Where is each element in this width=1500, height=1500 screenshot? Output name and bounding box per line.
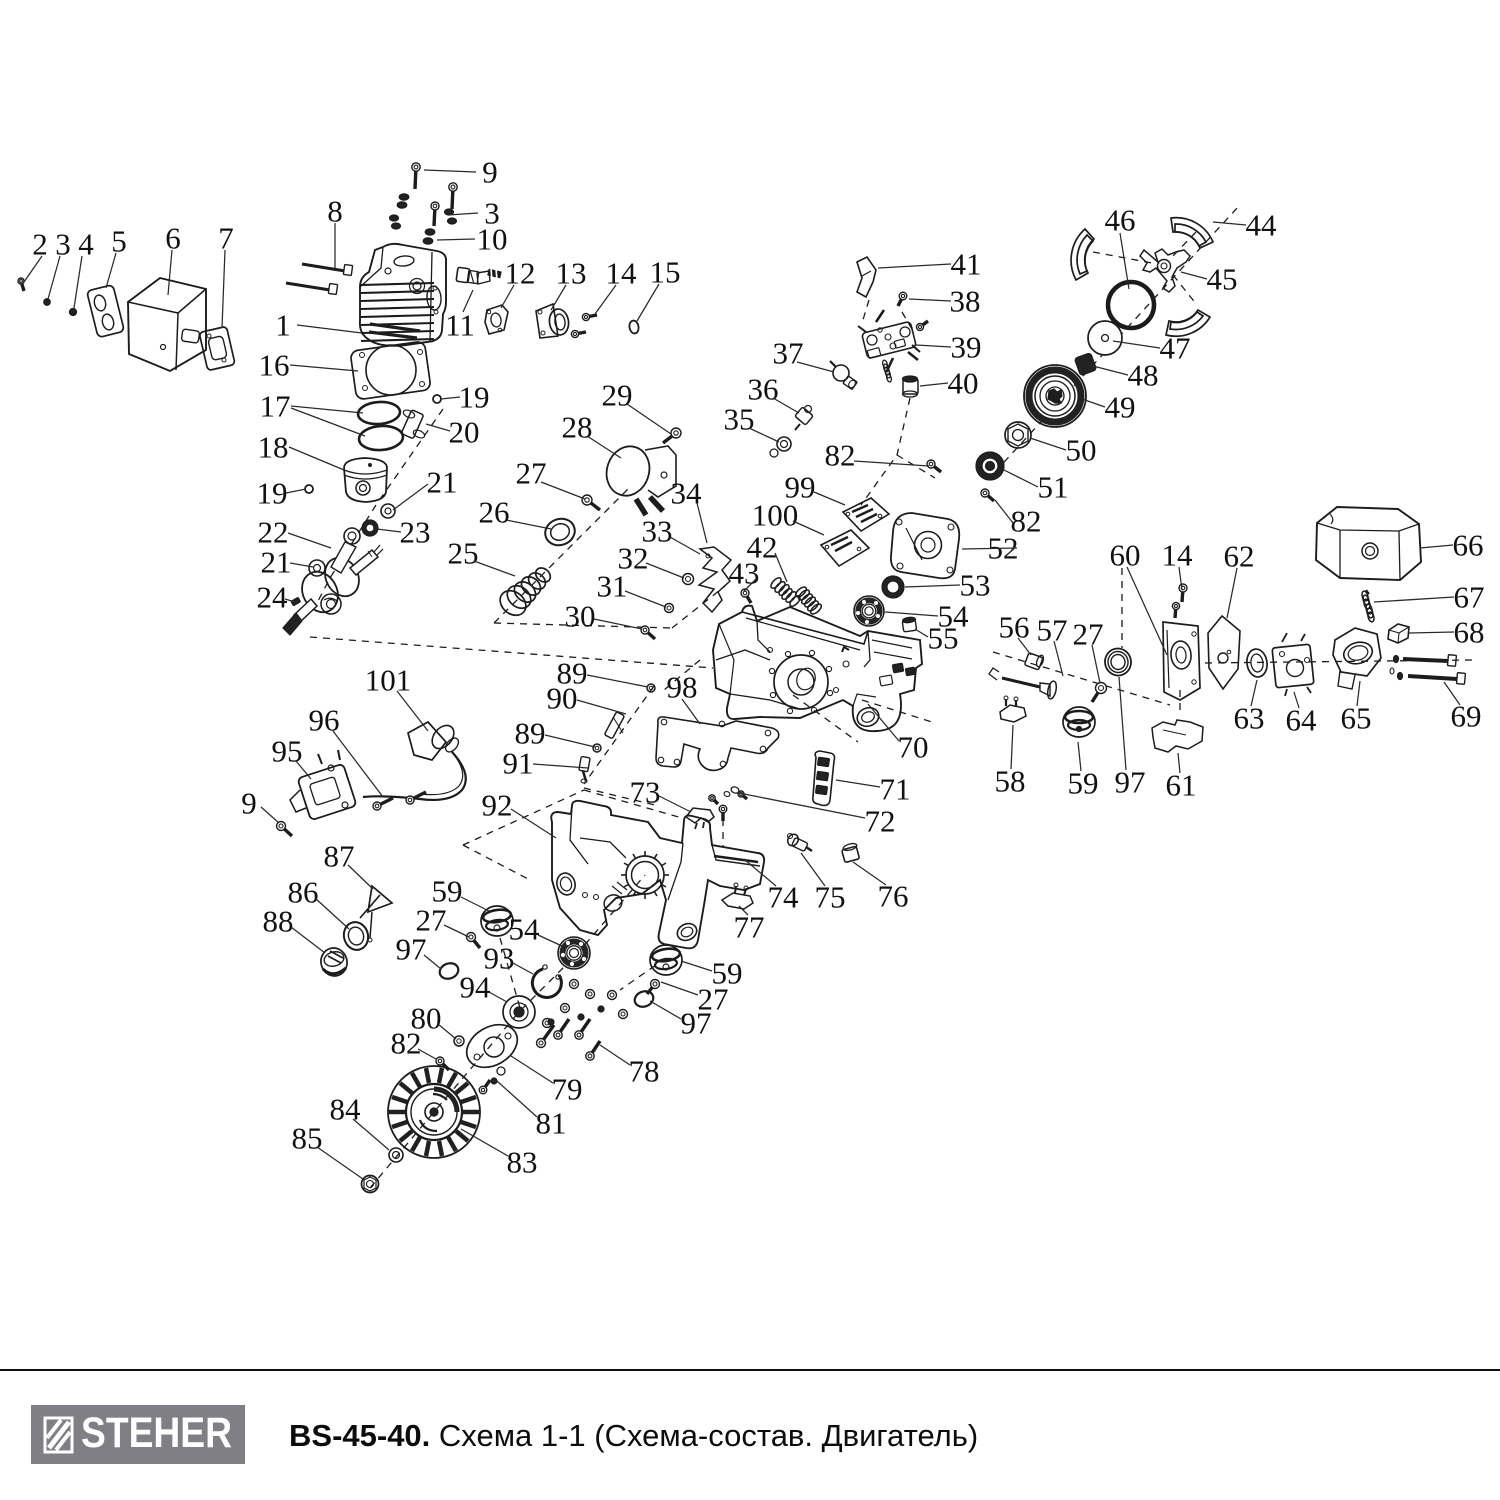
svg-text:5: 5 — [111, 224, 127, 259]
svg-text:19: 19 — [257, 476, 288, 511]
svg-text:23: 23 — [400, 515, 431, 550]
svg-text:11: 11 — [445, 308, 475, 343]
svg-text:88: 88 — [263, 904, 294, 939]
svg-text:69: 69 — [1451, 699, 1482, 734]
svg-text:66: 66 — [1453, 528, 1484, 563]
svg-text:STEHER: STEHER — [81, 1409, 232, 1457]
svg-text:65: 65 — [1341, 701, 1372, 736]
svg-text:82: 82 — [391, 1026, 422, 1061]
svg-text:1: 1 — [275, 308, 291, 343]
svg-text:47: 47 — [1160, 331, 1191, 366]
svg-text:68: 68 — [1454, 615, 1485, 650]
svg-text:4: 4 — [78, 227, 94, 262]
svg-text:17: 17 — [260, 389, 291, 424]
svg-text:12: 12 — [505, 256, 536, 291]
svg-text:76: 76 — [878, 879, 909, 914]
svg-text:83: 83 — [507, 1145, 538, 1180]
svg-text:64: 64 — [1286, 703, 1318, 738]
svg-text:58: 58 — [995, 764, 1026, 799]
svg-text:43: 43 — [729, 556, 760, 591]
svg-text:53: 53 — [960, 568, 991, 603]
svg-text:21: 21 — [427, 465, 458, 500]
svg-text:63: 63 — [1234, 701, 1265, 736]
svg-text:51: 51 — [1038, 470, 1069, 505]
svg-text:97: 97 — [1115, 765, 1146, 800]
svg-text:6: 6 — [165, 221, 181, 256]
svg-text:96: 96 — [309, 703, 340, 738]
svg-text:87: 87 — [324, 839, 355, 874]
svg-text:73: 73 — [630, 775, 661, 810]
svg-text:9: 9 — [241, 786, 257, 821]
svg-text:BS-45-40. Схема 1-1 (Схема-сос: BS-45-40. Схема 1-1 (Схема-состав. Двига… — [289, 1418, 978, 1453]
svg-text:74: 74 — [768, 880, 800, 915]
svg-text:60: 60 — [1110, 538, 1141, 573]
svg-text:90: 90 — [547, 681, 578, 716]
svg-text:45: 45 — [1207, 262, 1238, 297]
svg-text:41: 41 — [951, 247, 982, 282]
svg-text:10: 10 — [477, 222, 508, 257]
svg-text:67: 67 — [1454, 580, 1485, 615]
svg-text:7: 7 — [218, 221, 234, 256]
svg-text:37: 37 — [773, 336, 804, 371]
svg-text:59: 59 — [1068, 766, 1099, 801]
svg-text:25: 25 — [448, 536, 479, 571]
svg-text:29: 29 — [602, 378, 633, 413]
svg-text:82: 82 — [825, 438, 856, 473]
svg-text:75: 75 — [815, 880, 846, 915]
svg-text:30: 30 — [565, 599, 596, 634]
svg-text:91: 91 — [503, 746, 534, 781]
svg-text:56: 56 — [999, 610, 1030, 645]
svg-text:97: 97 — [681, 1006, 712, 1041]
svg-text:31: 31 — [597, 569, 628, 604]
svg-text:18: 18 — [258, 430, 289, 465]
svg-text:78: 78 — [629, 1054, 660, 1089]
svg-text:21: 21 — [261, 545, 292, 580]
svg-text:82: 82 — [1011, 504, 1042, 539]
svg-text:14: 14 — [1162, 538, 1194, 573]
svg-text:19: 19 — [459, 380, 490, 415]
svg-text:79: 79 — [552, 1072, 583, 1107]
svg-text:48: 48 — [1128, 358, 1159, 393]
svg-text:20: 20 — [449, 415, 480, 450]
svg-text:100: 100 — [752, 498, 799, 533]
svg-text:35: 35 — [724, 402, 755, 437]
svg-text:28: 28 — [562, 410, 593, 445]
svg-text:77: 77 — [734, 910, 765, 945]
svg-text:16: 16 — [259, 348, 290, 383]
svg-text:13: 13 — [556, 256, 587, 291]
svg-text:85: 85 — [292, 1121, 323, 1156]
svg-text:27: 27 — [516, 456, 547, 491]
svg-text:92: 92 — [482, 788, 513, 823]
svg-text:57: 57 — [1037, 613, 1068, 648]
svg-text:97: 97 — [396, 932, 427, 967]
svg-text:44: 44 — [1246, 208, 1278, 243]
svg-text:49: 49 — [1105, 390, 1136, 425]
svg-text:39: 39 — [951, 330, 982, 365]
svg-text:50: 50 — [1066, 433, 1097, 468]
svg-text:2: 2 — [32, 227, 48, 262]
svg-text:14: 14 — [606, 256, 638, 291]
svg-text:46: 46 — [1105, 203, 1136, 238]
svg-text:27: 27 — [1073, 617, 1104, 652]
svg-text:71: 71 — [880, 772, 911, 807]
svg-text:81: 81 — [536, 1106, 567, 1141]
svg-text:94: 94 — [460, 970, 492, 1005]
svg-text:3: 3 — [55, 227, 71, 262]
svg-text:70: 70 — [898, 730, 929, 765]
svg-text:26: 26 — [479, 495, 510, 530]
svg-text:38: 38 — [950, 284, 981, 319]
svg-text:101: 101 — [365, 663, 412, 698]
svg-text:24: 24 — [257, 580, 289, 615]
svg-text:9: 9 — [482, 155, 498, 190]
svg-text:15: 15 — [650, 255, 681, 290]
svg-text:72: 72 — [865, 804, 896, 839]
svg-text:40: 40 — [948, 366, 979, 401]
svg-text:61: 61 — [1166, 768, 1197, 803]
svg-text:55: 55 — [928, 621, 959, 656]
svg-text:62: 62 — [1224, 539, 1255, 574]
